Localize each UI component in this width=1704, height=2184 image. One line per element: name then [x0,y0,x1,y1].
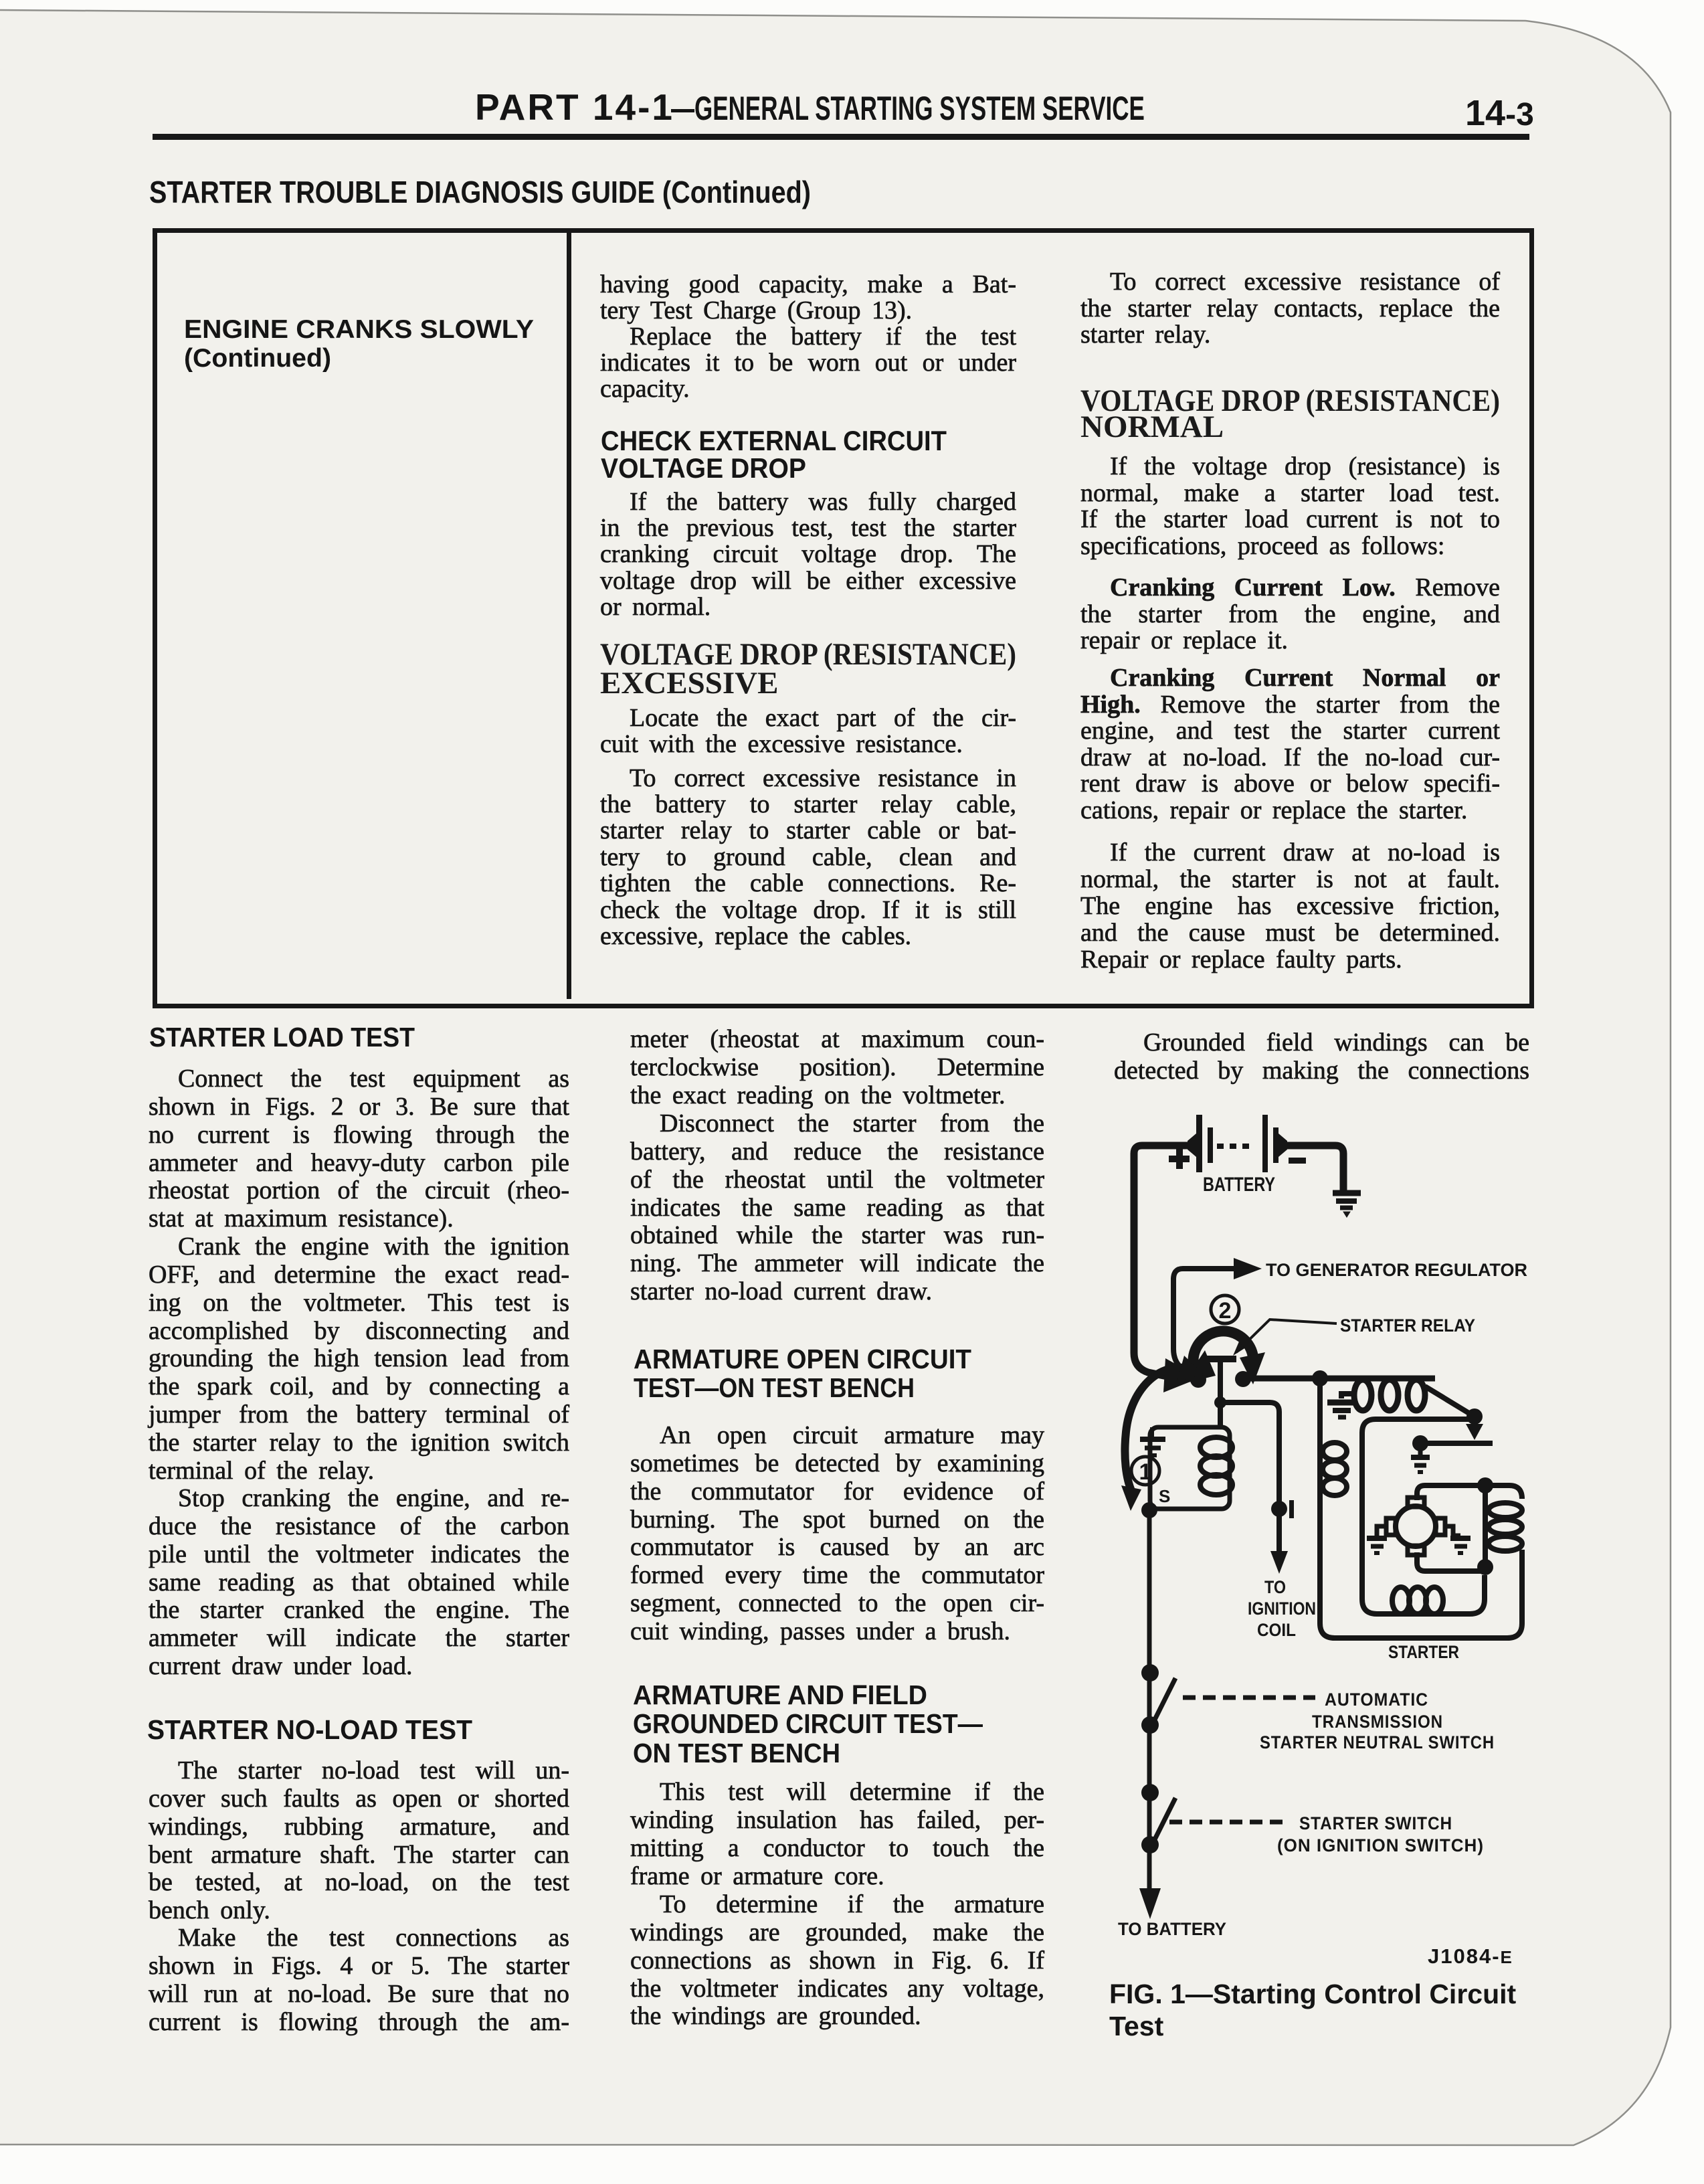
svg-text:EXCESSIVE: EXCESSIVE [600,666,778,701]
svg-text:ON TEST BENCH: ON TEST BENCH [633,1738,840,1768]
svg-text:STARTER TROUBLE DIAGNOSIS GUID: STARTER TROUBLE DIAGNOSIS GUIDE (Continu… [149,175,811,209]
svg-text:CHECK EXTERNAL CIRCUIT: CHECK EXTERNAL CIRCUIT [601,425,947,456]
svg-text:ENGINE CRANKS SLOWLY: ENGINE CRANKS SLOWLY [184,315,534,344]
svg-text:STARTER NO-LOAD TEST: STARTER NO-LOAD TEST [147,1714,472,1745]
svg-text:GROUNDED CIRCUIT TEST—: GROUNDED CIRCUIT TEST— [633,1708,983,1739]
svg-text:VOLTAGE DROP: VOLTAGE DROP [601,452,806,484]
svg-text:ARMATURE AND FIELD: ARMATURE AND FIELD [633,1679,927,1710]
svg-text:STARTER LOAD TEST: STARTER LOAD TEST [149,1022,415,1053]
svg-text:TEST—ON TEST BENCH: TEST—ON TEST BENCH [634,1372,915,1403]
svg-text:NORMAL: NORMAL [1080,409,1224,444]
svg-text:ARMATURE OPEN CIRCUIT: ARMATURE OPEN CIRCUIT [634,1344,971,1374]
svg-text:(Continued): (Continued) [184,344,331,373]
